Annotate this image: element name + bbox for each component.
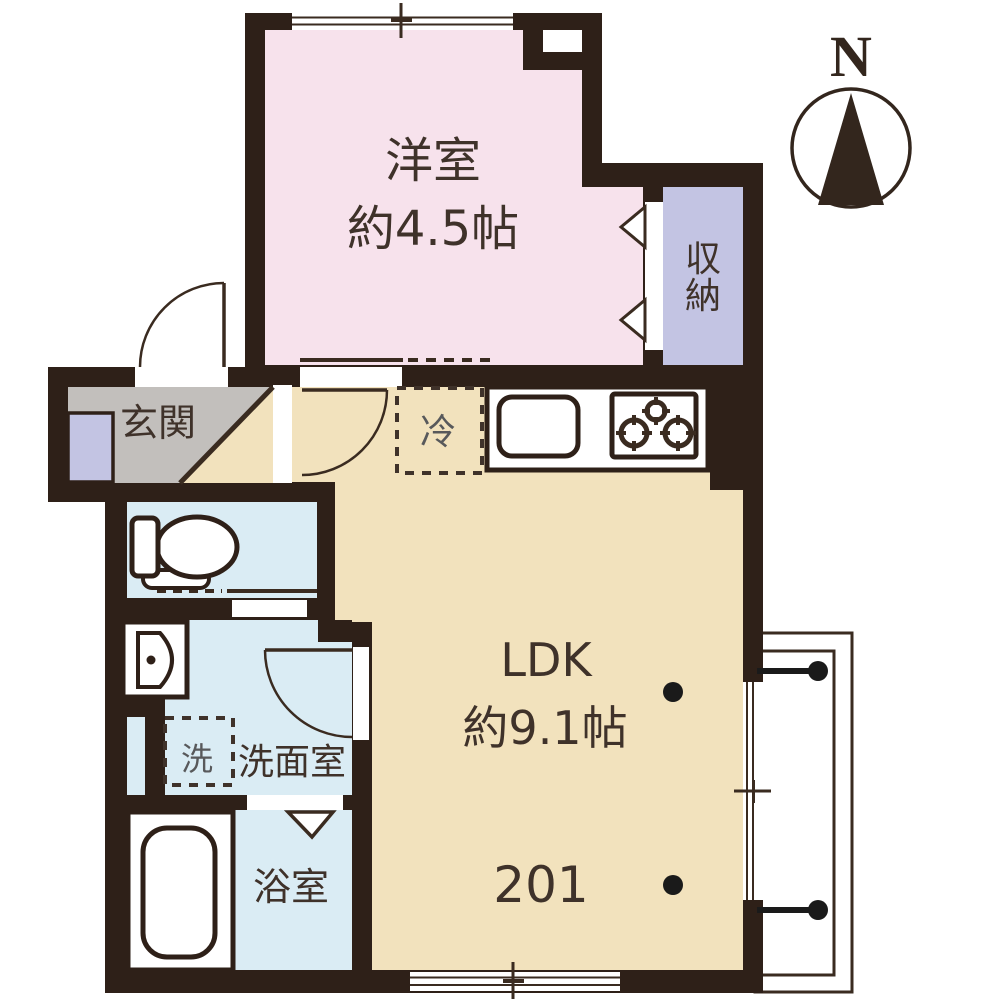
vanity-sink-icon bbox=[123, 622, 187, 697]
storage-door-panel bbox=[645, 202, 663, 350]
compass-north-label: N bbox=[830, 24, 872, 89]
compass-north-icon: N bbox=[792, 24, 910, 207]
entrance-door bbox=[140, 283, 224, 367]
storage-label-char: 収 bbox=[685, 239, 721, 280]
washroom-door-opening bbox=[353, 647, 369, 740]
bathtub-icon bbox=[128, 812, 233, 970]
bathroom-label: 浴室 bbox=[253, 865, 329, 909]
kitchen-sink-icon bbox=[499, 397, 578, 456]
shoe-cabinet bbox=[68, 413, 113, 482]
toilet-door-opening bbox=[232, 600, 307, 617]
ldk-label: LDK bbox=[500, 633, 593, 687]
bathtub-basin bbox=[143, 828, 215, 957]
hall-ldk-door-opening bbox=[273, 385, 292, 483]
balcony-pole-dot bbox=[808, 661, 828, 681]
pillar-dot-icon bbox=[663, 875, 683, 895]
floor-plan-canvas: N 洋室 約4.5帖 収 納 玄関 冷 LDK 約9.1帖 201 洗 洗面室 … bbox=[0, 0, 1000, 1000]
western-room-door-opening bbox=[300, 367, 402, 387]
entrance-door-opening bbox=[135, 367, 228, 387]
washroom-alcove-wall bbox=[127, 698, 145, 717]
unit-number-label: 201 bbox=[493, 856, 588, 914]
entrance-door-swing-arc bbox=[140, 283, 224, 367]
toilet-tank bbox=[132, 518, 158, 576]
refrigerator-label: 冷 bbox=[420, 412, 456, 453]
washing-machine-label: 洗 bbox=[181, 740, 213, 778]
balcony-inner-floor bbox=[755, 651, 834, 975]
floor-plan: N 洋室 約4.5帖 収 納 玄関 冷 LDK 約9.1帖 201 洗 洗面室 … bbox=[0, 0, 1000, 1000]
balcony bbox=[755, 633, 852, 992]
western-room-label: 洋室 bbox=[385, 133, 481, 189]
bathroom-door-opening bbox=[247, 795, 343, 810]
pillar-dot-icon bbox=[663, 682, 683, 702]
washroom-wall-notch bbox=[318, 620, 352, 642]
storage-label-char: 納 bbox=[685, 276, 721, 317]
washroom-divider-wall bbox=[145, 698, 165, 795]
kitchen-counter bbox=[487, 387, 708, 470]
washroom-label: 洗面室 bbox=[238, 742, 346, 783]
balcony-pole-dot bbox=[808, 900, 828, 920]
stove-icon bbox=[612, 394, 696, 457]
small-wall-window bbox=[543, 30, 582, 52]
toilet-bowl bbox=[157, 517, 237, 577]
ldk-size-label: 約9.1帖 bbox=[462, 701, 627, 755]
entrance-label: 玄関 bbox=[120, 401, 196, 445]
vanity-faucet-icon bbox=[147, 656, 156, 665]
western-room-size-label: 約4.5帖 bbox=[347, 201, 519, 257]
